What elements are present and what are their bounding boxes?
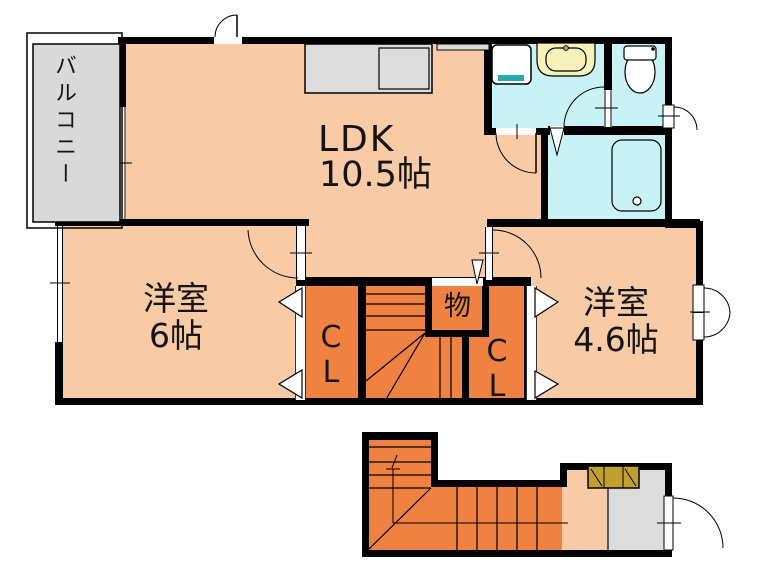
entry-door-icon	[657, 496, 723, 550]
bathroom-area	[544, 126, 670, 224]
washroom-hall-area	[484, 128, 548, 227]
ldk-label: LDK	[318, 122, 395, 158]
balcony-label: バルコニー	[52, 54, 74, 189]
room46-label: 洋室 4.6帖	[542, 284, 690, 358]
closet-left-label: C L	[311, 320, 351, 390]
room6-label: 洋室 6帖	[106, 280, 246, 354]
ldk-top-door-icon	[214, 15, 242, 44]
toilet-icon	[624, 46, 656, 93]
stairs-1f-area	[366, 436, 562, 554]
closet-right-label: C L	[477, 334, 517, 404]
room46-window-icon	[690, 285, 730, 340]
sink-vanity-icon	[537, 43, 595, 76]
ldk-size-label: 10.5帖	[319, 158, 432, 193]
toilet-window-icon	[658, 105, 697, 130]
shoe-cabinet-icon	[588, 466, 639, 488]
floor-plan-canvas: バルコニー LDK 10.5帖 洋室 6帖 洋室 4.6帖 C L C L 物	[0, 0, 759, 588]
first-floor-plan	[362, 432, 723, 557]
washing-machine-icon	[492, 45, 531, 84]
storage-label: 物	[444, 293, 471, 320]
